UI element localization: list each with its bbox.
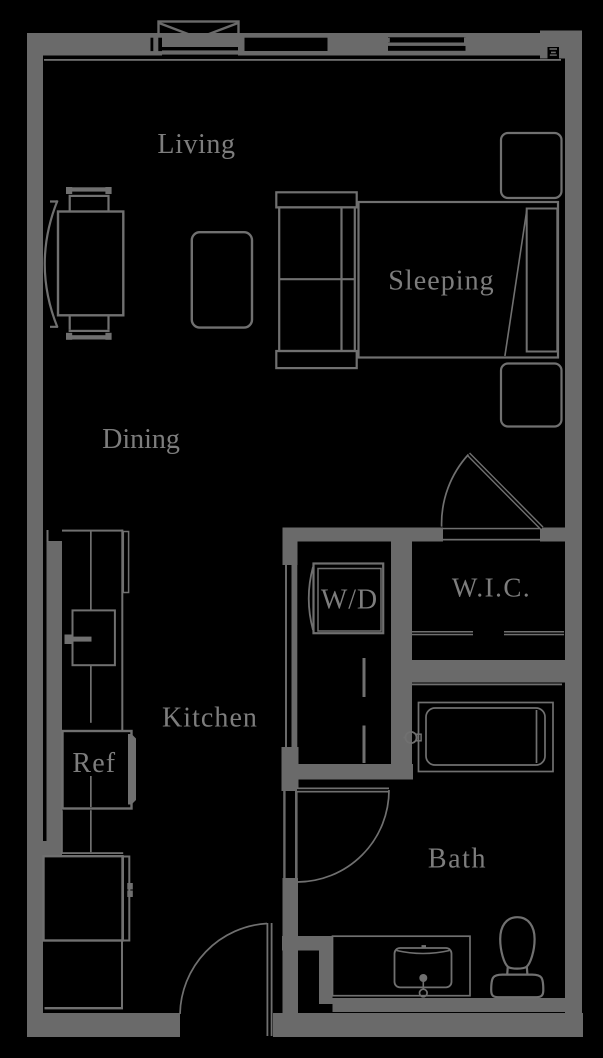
svg-text:Bath: Bath — [428, 844, 487, 875]
svg-text:Dining: Dining — [102, 424, 180, 455]
svg-text:W.I.C.: W.I.C. — [452, 573, 531, 603]
svg-text:Sleeping: Sleeping — [388, 266, 494, 297]
svg-text:Kitchen: Kitchen — [162, 703, 258, 734]
svg-text:W/D: W/D — [321, 585, 378, 616]
svg-text:Living: Living — [157, 129, 235, 160]
svg-text:Ref: Ref — [72, 748, 116, 779]
